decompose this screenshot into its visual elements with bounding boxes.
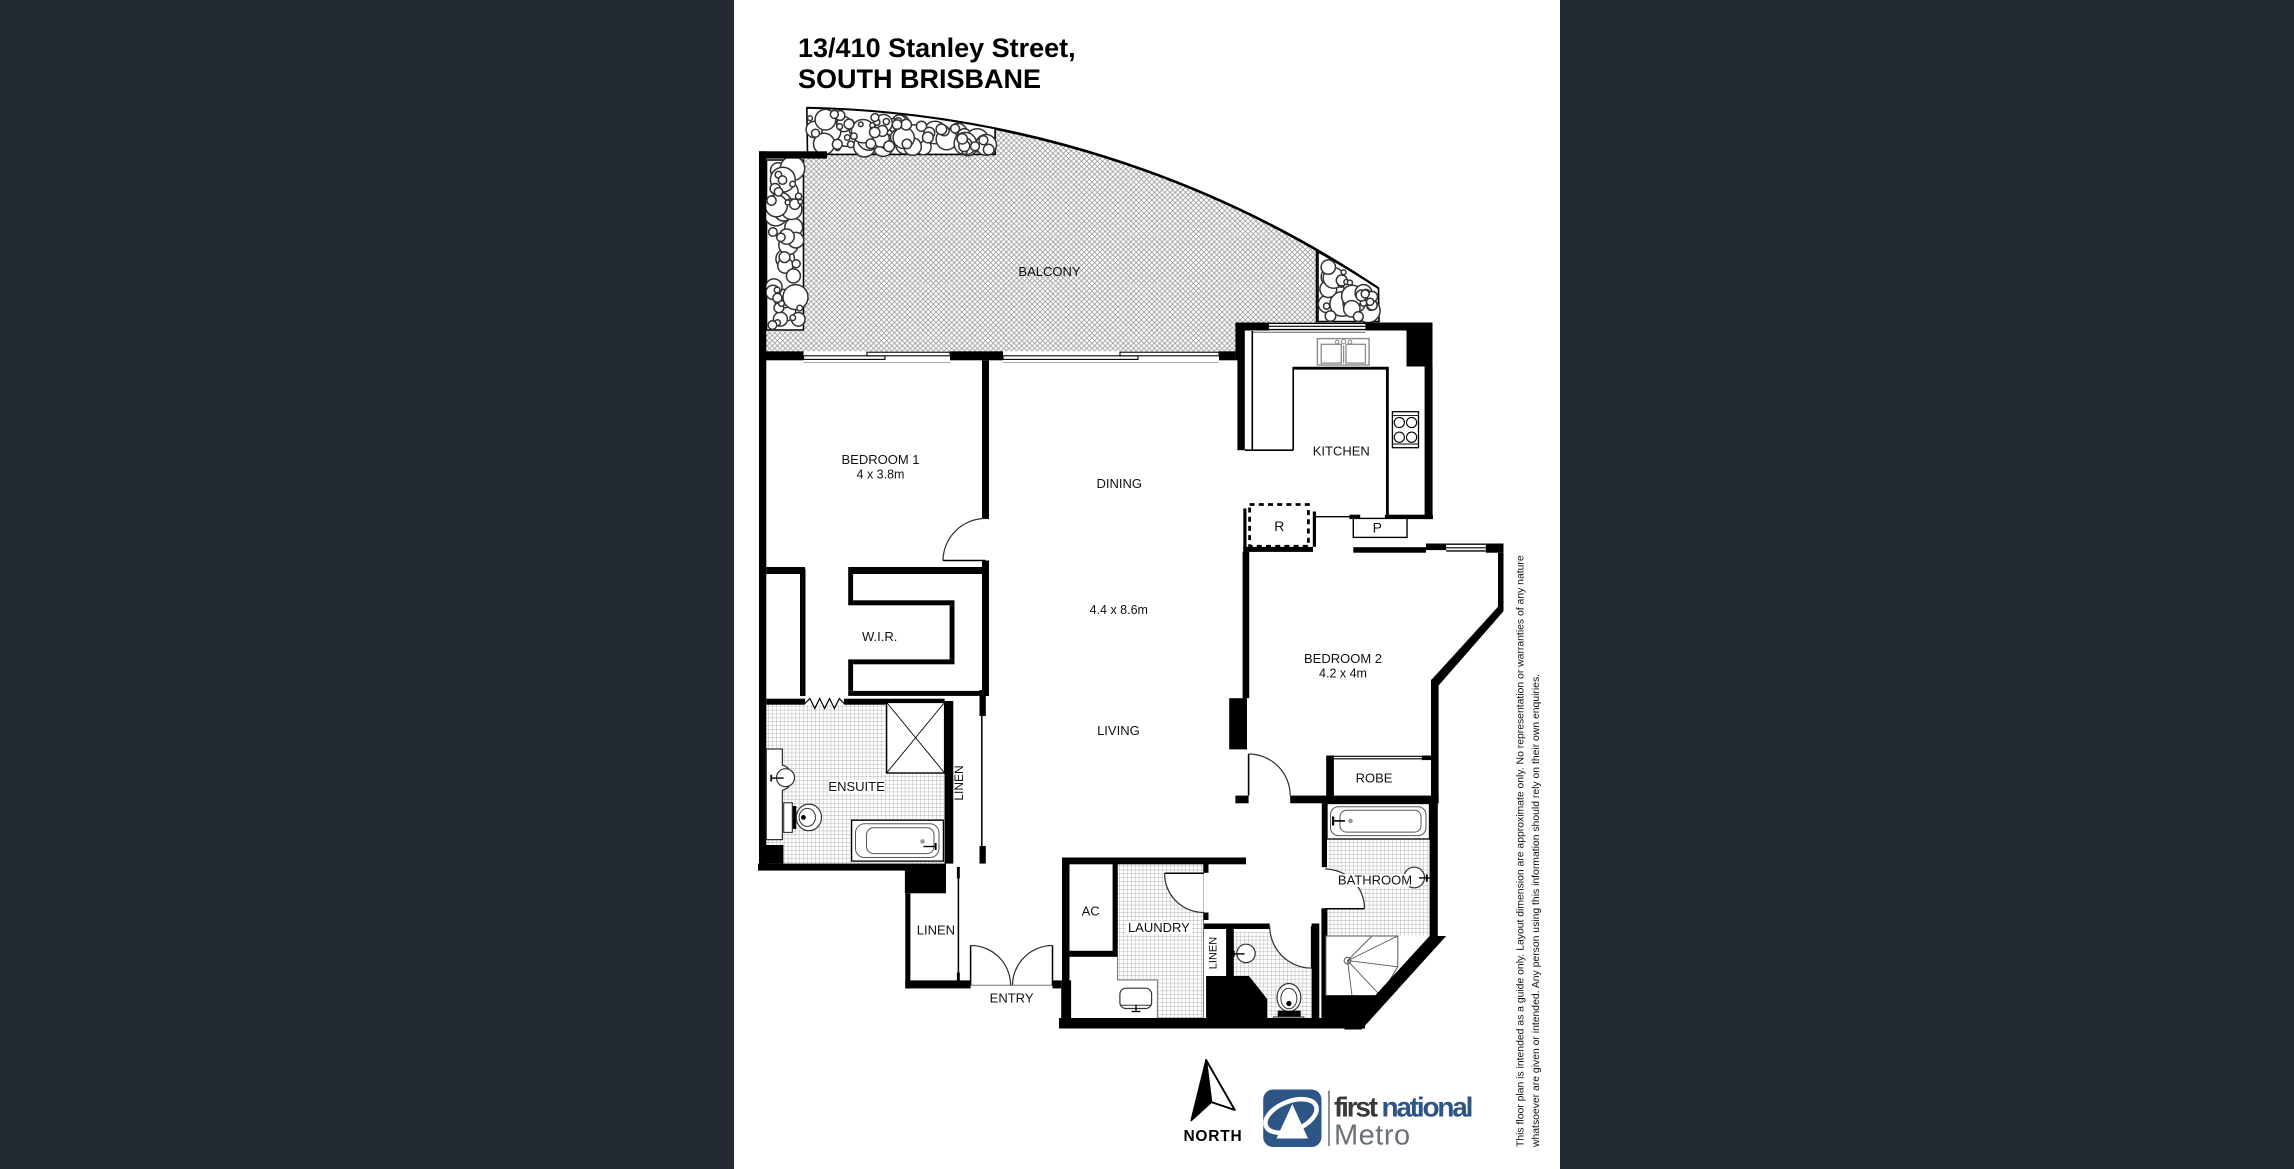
- svg-text:AC: AC: [1082, 904, 1100, 919]
- svg-text:P: P: [1373, 520, 1382, 536]
- svg-text:LINEN: LINEN: [952, 765, 966, 800]
- svg-text:R: R: [1274, 518, 1284, 534]
- svg-text:NORTH: NORTH: [1183, 1128, 1242, 1145]
- svg-text:Metro: Metro: [1334, 1120, 1411, 1152]
- svg-text:ROBE: ROBE: [1356, 771, 1393, 786]
- svg-text:ENTRY: ENTRY: [990, 991, 1034, 1006]
- svg-text:SOUTH BRISBANE: SOUTH BRISBANE: [798, 64, 1041, 94]
- svg-text:BALCONY: BALCONY: [1018, 264, 1080, 279]
- svg-text:LINEN: LINEN: [1208, 937, 1220, 969]
- svg-text:KITCHEN: KITCHEN: [1313, 444, 1370, 459]
- svg-text:whatsoever are given or intend: whatsoever are given or intended. Any pe…: [1531, 674, 1542, 1148]
- svg-text:LAUNDRY: LAUNDRY: [1128, 920, 1190, 935]
- svg-text:4.4 x 8.6m: 4.4 x 8.6m: [1090, 603, 1148, 617]
- svg-text:W.I.R.: W.I.R.: [862, 629, 897, 644]
- svg-text:4 x 3.8m: 4 x 3.8m: [857, 468, 905, 482]
- svg-text:LINEN: LINEN: [917, 923, 955, 938]
- svg-text:LIVING: LIVING: [1097, 723, 1140, 738]
- svg-text:BEDROOM 2: BEDROOM 2: [1304, 651, 1382, 666]
- svg-text:BEDROOM 1: BEDROOM 1: [841, 452, 919, 467]
- svg-text:13/410 Stanley Street,: 13/410 Stanley Street,: [798, 33, 1076, 63]
- svg-text:4.2 x 4m: 4.2 x 4m: [1319, 667, 1367, 681]
- svg-text:This floor plan is intended as: This floor plan is intended as a guide o…: [1515, 555, 1526, 1147]
- svg-text:ENSUITE: ENSUITE: [828, 779, 885, 794]
- svg-text:first national: first national: [1334, 1092, 1472, 1123]
- svg-text:BATHROOM: BATHROOM: [1338, 873, 1412, 888]
- svg-text:DINING: DINING: [1097, 476, 1143, 491]
